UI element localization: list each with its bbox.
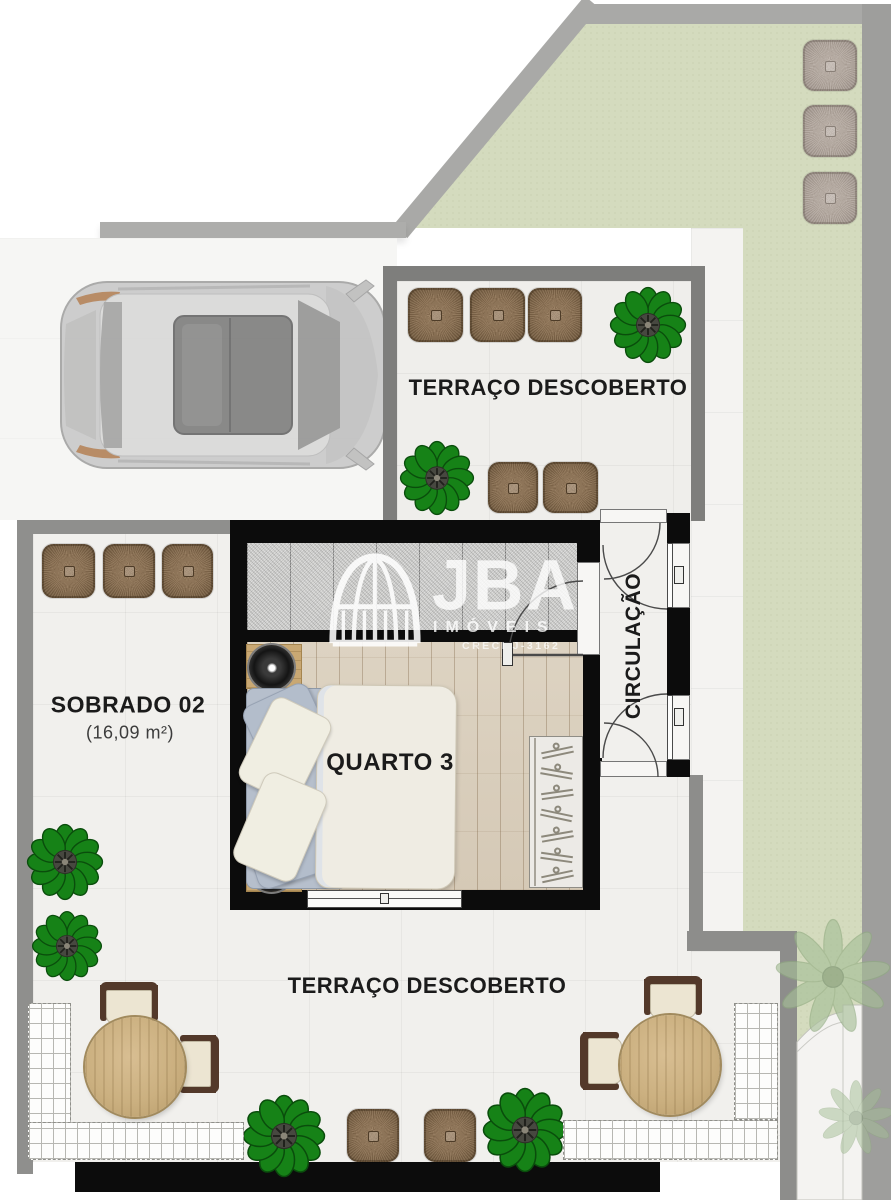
terrace-cushion xyxy=(162,544,213,598)
terrace-cushion xyxy=(408,288,463,342)
door-leaf xyxy=(667,543,673,608)
terrace-top-wall-n xyxy=(383,266,705,281)
terrace-bottom-label: TERRAÇO DESCOBERTO xyxy=(288,973,567,999)
bed-duvet xyxy=(315,684,457,889)
terrace-top-wall-e xyxy=(691,266,705,521)
door-handle xyxy=(674,566,684,584)
wall-driveway xyxy=(100,222,406,238)
trellis-deck xyxy=(734,1003,778,1120)
door-leaf xyxy=(667,695,673,760)
round-table xyxy=(85,1017,185,1117)
window-latch xyxy=(380,893,389,904)
dome-logo-icon xyxy=(327,550,423,648)
wall-stub-e xyxy=(689,775,703,933)
bedroom-wall-e-b xyxy=(583,655,600,910)
terrace-cushion xyxy=(470,288,525,342)
plant-icon xyxy=(33,912,101,980)
wall-bottom-black xyxy=(75,1162,660,1192)
plant-icon xyxy=(401,442,473,514)
terrace-cushion xyxy=(488,462,538,513)
circulation-wall-e-b xyxy=(667,608,690,695)
plant-icon xyxy=(611,288,685,362)
circulation-wall-e-c xyxy=(667,760,690,777)
floor-plan: TERRAÇO DESCOBERTO TERRAÇO DESCOBERTO QU… xyxy=(0,0,891,1200)
terrace-cushion xyxy=(42,544,95,598)
chair xyxy=(580,1032,622,1090)
trellis-deck xyxy=(28,1122,244,1160)
door-handle xyxy=(674,708,684,726)
terrace-bottom-wall-n xyxy=(17,520,231,534)
bedroom-label: QUARTO 3 xyxy=(326,749,454,777)
garden-cushion xyxy=(803,40,857,91)
terrace-cushion xyxy=(543,462,598,513)
unit-label: SOBRADO 02 xyxy=(51,692,206,719)
round-table xyxy=(620,1015,720,1115)
bedroom-wall-n xyxy=(230,520,600,543)
garden-cushion xyxy=(803,172,857,224)
brand-license: CRECI J-3162 xyxy=(462,641,560,652)
circulation-door-south xyxy=(600,761,667,777)
terrace-cushion xyxy=(424,1109,476,1162)
plant-icon xyxy=(484,1089,566,1171)
chair xyxy=(644,976,702,1018)
plant-icon xyxy=(244,1096,324,1176)
circulation-label: CIRCULAÇÃO xyxy=(622,573,646,719)
trellis-deck xyxy=(563,1120,778,1160)
terrace-top-wall-w xyxy=(383,266,397,520)
unit-area-label: (16,09 m²) xyxy=(86,723,174,744)
hangers-icon xyxy=(529,736,583,888)
circulation-door-north xyxy=(600,509,667,523)
palm-icon xyxy=(826,1088,886,1148)
circulation-wall-e-a xyxy=(667,513,690,543)
watermark: JBA IMÓVEIS CRECI J-3162 xyxy=(318,548,598,666)
wall-top xyxy=(585,4,891,24)
lamp-icon xyxy=(249,645,294,690)
terrace-top-label: TERRAÇO DESCOBERTO xyxy=(409,375,688,401)
car-icon xyxy=(58,272,388,478)
palm-icon xyxy=(787,931,879,1023)
terrace-cushion xyxy=(528,288,582,342)
terrace-cushion xyxy=(103,544,155,598)
brand-name: JBA xyxy=(432,549,578,620)
brand-type: IMÓVEIS xyxy=(433,620,556,636)
plant-icon xyxy=(28,825,102,899)
terrace-cushion xyxy=(347,1109,399,1162)
garden-cushion xyxy=(803,105,857,157)
